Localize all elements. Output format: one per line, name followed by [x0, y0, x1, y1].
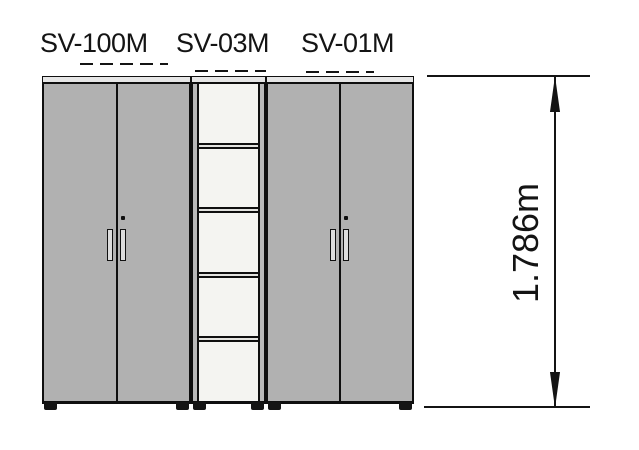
- arrow-down-icon: [549, 372, 561, 408]
- cabinet-body: [266, 83, 414, 404]
- cabinet-top-rail: [191, 76, 266, 83]
- cabinet-foot: [193, 402, 206, 410]
- door-handle: [330, 229, 336, 261]
- cabinet-foot: [251, 402, 264, 410]
- dimension-line: [554, 76, 556, 408]
- arrow-up-icon: [549, 76, 561, 112]
- unit-label-sv-01m: SV-01M: [301, 30, 394, 57]
- leader-line-sv-01m: [306, 71, 374, 73]
- leader-line-sv-100m: [80, 63, 168, 65]
- door-split-line: [339, 84, 341, 401]
- unit-sv-01m-cabinet: [266, 76, 414, 404]
- cabinet-top-rail: [266, 76, 414, 83]
- shelf-compartment: [199, 149, 258, 208]
- lock-dot: [121, 216, 125, 220]
- cabinet-foot: [44, 402, 57, 410]
- shelf-compartment: [199, 278, 258, 337]
- door-split-line: [116, 84, 118, 401]
- leader-line-sv-03m: [195, 70, 266, 72]
- dimension-value: 1.786m: [508, 183, 544, 303]
- door-handle: [107, 229, 113, 261]
- cabinet-top-rail: [42, 76, 191, 83]
- shelf-compartment: [199, 342, 258, 401]
- door-handle: [343, 229, 349, 261]
- cabinet-body: [42, 83, 191, 404]
- lock-dot: [344, 216, 348, 220]
- cabinet-foot: [176, 402, 189, 410]
- unit-label-sv-03m: SV-03M: [176, 30, 269, 57]
- dimension-extension-line-bottom: [424, 406, 590, 408]
- shelf-body: [191, 83, 266, 404]
- cabinet-foot: [399, 402, 412, 410]
- door-handle: [120, 229, 126, 261]
- shelf-column: [197, 84, 260, 401]
- unit-sv-03m-shelf: [191, 76, 266, 404]
- cabinet-foot: [268, 402, 281, 410]
- unit-sv-100m-cabinet: [42, 76, 191, 404]
- unit-label-sv-100m: SV-100M: [40, 30, 148, 57]
- dimension-extension-line-top: [427, 75, 590, 77]
- shelf-compartment: [199, 84, 258, 143]
- shelf-compartment: [199, 213, 258, 272]
- furniture-elevation-drawing: SV-100M SV-03M SV-01M: [0, 0, 639, 450]
